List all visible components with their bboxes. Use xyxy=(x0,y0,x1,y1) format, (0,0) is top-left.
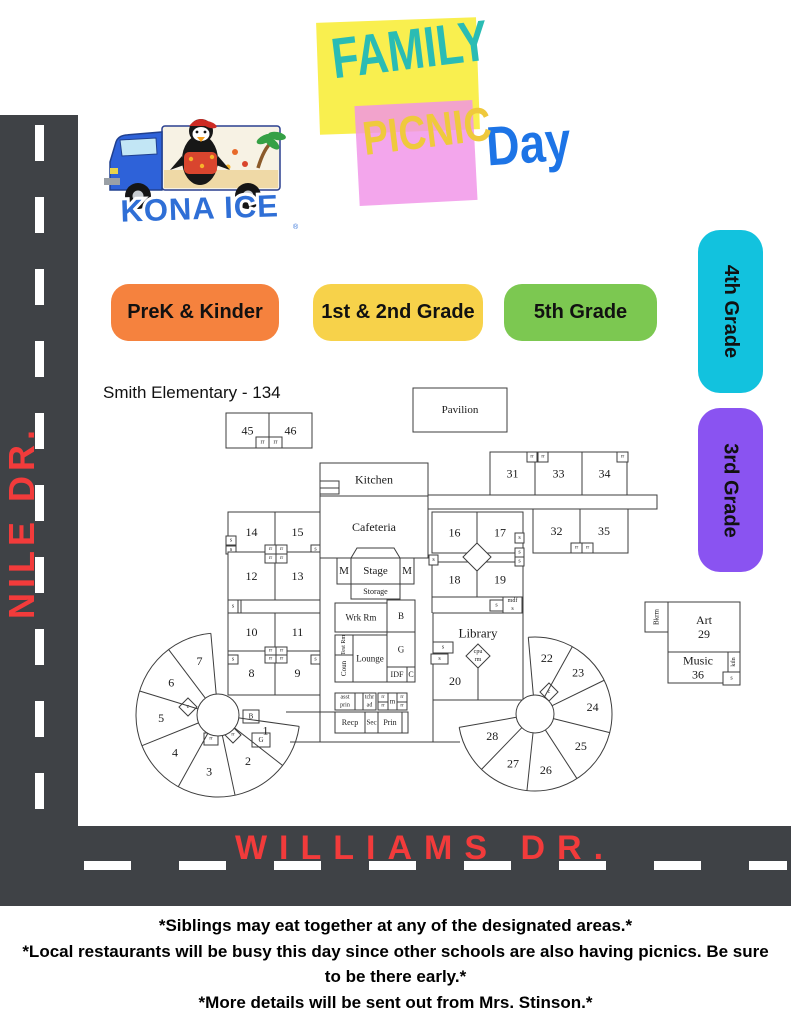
map-label: 26 xyxy=(540,763,552,777)
map-room xyxy=(428,495,657,509)
map-room xyxy=(582,543,593,553)
map-label: Recp xyxy=(342,718,358,727)
map-room xyxy=(535,452,582,495)
map-label: s xyxy=(432,557,435,563)
map-room xyxy=(335,655,353,682)
map-pod-ring xyxy=(459,637,612,791)
map-label: Lounge xyxy=(356,654,384,664)
nile-drive-label: NILE DR. xyxy=(1,402,43,642)
school-name-label: Smith Elementary - 134 xyxy=(103,383,281,403)
map-pod-spoke xyxy=(235,728,283,766)
map-label: 1 xyxy=(263,723,269,737)
map-label: 18 xyxy=(449,573,461,587)
map-room xyxy=(311,655,320,664)
map-label: rr xyxy=(621,455,625,460)
map-label: s xyxy=(232,604,235,610)
map-label: s xyxy=(518,550,521,556)
map-pod-spoke xyxy=(178,733,208,786)
map-room xyxy=(432,562,477,597)
map-label: tchr xyxy=(365,695,374,701)
legend-label: PreK & Kinder xyxy=(127,301,263,324)
map-label: rr xyxy=(280,547,284,552)
map-room xyxy=(353,635,387,682)
map-room xyxy=(275,613,320,651)
map-label: 27 xyxy=(507,756,519,770)
map-label: ad xyxy=(367,703,373,709)
map-label: 28 xyxy=(486,729,498,743)
map-room xyxy=(275,512,320,552)
map-label: rr xyxy=(586,546,590,551)
map-label: C xyxy=(408,670,413,679)
map-label: 4 xyxy=(172,745,178,759)
map-label: rr xyxy=(269,649,273,654)
map-label: Wrk Rm xyxy=(346,613,377,623)
legend-label: 3rd Grade xyxy=(719,443,742,537)
map-label: Sec xyxy=(366,719,376,727)
map-room xyxy=(582,452,627,495)
map-room xyxy=(355,693,363,710)
flyer-page: NILE DR. WILLIAMS DR. FAMILY PICNIC Day xyxy=(0,0,791,1024)
note-line: *Local restaurants will be busy this day… xyxy=(15,939,776,990)
map-room xyxy=(728,652,740,672)
map-label: rr xyxy=(530,455,534,460)
legend-label: 5th Grade xyxy=(534,301,627,324)
legend-4th: 4th Grade xyxy=(698,230,763,393)
map-room xyxy=(243,710,259,723)
title-day: Day xyxy=(484,108,573,179)
map-label: s xyxy=(230,547,233,553)
map-label: rr xyxy=(400,704,404,709)
map-room xyxy=(256,437,269,448)
map-pod-spoke xyxy=(528,637,533,695)
legend-prek-kinder: PreK & Kinder xyxy=(111,284,279,341)
map-pod-hub xyxy=(516,695,554,733)
map-room xyxy=(515,557,524,566)
map-diamond xyxy=(225,727,241,743)
map-room xyxy=(335,712,365,733)
map-label: 11 xyxy=(292,625,304,639)
map-room xyxy=(335,603,387,632)
map-label: s xyxy=(230,538,233,544)
map-room xyxy=(265,655,276,663)
map-label: rr xyxy=(381,704,385,709)
map-room xyxy=(265,545,276,554)
map-room xyxy=(387,667,407,682)
map-room xyxy=(228,655,238,664)
map-room xyxy=(275,552,320,600)
map-label: s xyxy=(495,603,498,609)
legend-5th: 5th Grade xyxy=(504,284,657,341)
map-label: rr xyxy=(280,657,284,662)
map-label: rr xyxy=(269,556,273,561)
map-label: 3 xyxy=(206,764,212,778)
kona-ice-logo: KONA ICE ® xyxy=(100,112,305,237)
map-label: 25 xyxy=(575,739,587,753)
map-room xyxy=(335,693,355,710)
map-diamond xyxy=(466,644,490,668)
map-label: s xyxy=(314,657,317,663)
map-label: 16 xyxy=(449,526,461,540)
map-label: rr xyxy=(541,455,545,460)
map-label: M xyxy=(402,565,412,577)
map-label: rr xyxy=(280,556,284,561)
map-label: Cafeteria xyxy=(352,520,397,534)
map-label: 7 xyxy=(196,654,202,668)
note-line: *Siblings may eat together at any of the… xyxy=(15,913,776,939)
map-room xyxy=(477,562,523,597)
map-room xyxy=(320,463,428,496)
map-label: Pavilion xyxy=(442,404,479,416)
map-label: rr xyxy=(231,733,235,738)
map-label: 5 xyxy=(158,711,164,725)
map-room xyxy=(378,712,402,733)
map-room xyxy=(276,655,287,663)
map-room xyxy=(515,533,524,543)
registered-mark: ® xyxy=(293,223,299,231)
map-label: 29 xyxy=(698,627,710,641)
map-pod-spoke xyxy=(239,718,299,726)
map-label: prin xyxy=(340,703,350,709)
map-diamond xyxy=(179,698,197,716)
map-label: 14 xyxy=(246,525,258,539)
map-room xyxy=(378,693,388,702)
map-room xyxy=(265,647,276,655)
map-label: Coun xyxy=(340,660,348,676)
map-label: rr xyxy=(209,737,213,742)
kona-ice-wordmark: KONA ICE ® xyxy=(120,188,299,231)
map-label: rr xyxy=(381,695,385,700)
map-label: rr xyxy=(280,649,284,654)
map-label: s xyxy=(314,547,317,553)
note-line: *More details will be sent out from Mrs.… xyxy=(15,990,776,1016)
map-label: s xyxy=(518,559,521,565)
map-label: 12 xyxy=(246,569,258,583)
map-room xyxy=(311,545,320,554)
map-label: Library xyxy=(459,626,498,641)
map-label: 23 xyxy=(572,665,584,679)
map-room xyxy=(617,452,628,462)
map-label: rr xyxy=(274,440,278,446)
map-room xyxy=(400,558,414,584)
map-label: s xyxy=(518,535,521,541)
map-label: s xyxy=(730,676,733,682)
map-label: 13 xyxy=(292,569,304,583)
map-pod-spoke xyxy=(545,730,577,779)
map-pod-spoke xyxy=(142,723,199,746)
map-room xyxy=(228,552,275,600)
map-label: 19 xyxy=(494,573,506,587)
legend-3rd: 3rd Grade xyxy=(698,408,763,572)
map-room xyxy=(363,693,376,710)
map-label: c xyxy=(548,689,551,695)
map-room xyxy=(397,702,407,710)
map-room xyxy=(228,600,238,613)
map-label: 10 xyxy=(246,625,258,639)
map-room xyxy=(503,597,522,613)
map-room xyxy=(515,548,524,557)
map-room xyxy=(387,632,415,667)
map-label: Bkrm xyxy=(653,608,661,625)
map-label: 34 xyxy=(599,467,611,481)
map-label: Stage xyxy=(363,565,388,577)
map-label: B xyxy=(249,713,254,721)
map-room xyxy=(337,558,351,584)
map-room xyxy=(204,733,218,745)
map-room xyxy=(397,693,407,702)
map-room xyxy=(320,488,339,494)
map-pod-spoke xyxy=(544,647,572,698)
map-pod-spoke xyxy=(459,717,516,727)
map-label: c xyxy=(187,704,190,710)
map-label: s xyxy=(442,645,445,651)
map-room xyxy=(228,651,275,695)
map-label: M xyxy=(339,565,349,577)
svg-text:KONA ICE: KONA ICE xyxy=(120,188,280,229)
map-room xyxy=(378,702,388,710)
map-label: rm xyxy=(475,657,482,663)
map-room xyxy=(432,512,477,553)
map-label: 22 xyxy=(541,651,553,665)
map-label: Prin xyxy=(383,718,396,727)
map-room xyxy=(276,545,287,554)
map-label: Music xyxy=(683,654,713,668)
map-room xyxy=(668,602,740,652)
map-room xyxy=(533,509,580,553)
map-label: B xyxy=(398,611,404,621)
map-room xyxy=(269,437,282,448)
map-pod-spoke xyxy=(222,736,235,796)
map-pod-spoke xyxy=(211,633,216,694)
map-pod-spoke xyxy=(527,733,533,791)
map-pod-spoke xyxy=(553,719,609,733)
map-label: 24 xyxy=(587,700,599,714)
map-diamond xyxy=(463,543,491,571)
map-label: 31 xyxy=(507,467,519,481)
map-label: Test Rm xyxy=(341,635,347,655)
map-room xyxy=(433,642,453,653)
map-label: 17 xyxy=(494,526,506,540)
map-room xyxy=(538,452,548,462)
map-label: rr xyxy=(269,657,273,662)
map-label: rr xyxy=(261,440,265,446)
map-wall xyxy=(351,548,400,558)
map-pod-spoke xyxy=(140,691,198,709)
map-pod-spoke xyxy=(169,650,206,699)
map-room xyxy=(351,558,400,584)
map-room xyxy=(275,651,320,695)
map-label: 8 xyxy=(249,666,255,680)
map-label: 20 xyxy=(449,674,461,688)
map-label: 6 xyxy=(168,675,174,689)
map-label: Storage xyxy=(363,587,388,596)
map-room xyxy=(388,693,397,710)
map-room xyxy=(571,543,582,553)
map-label: s xyxy=(232,657,235,663)
map-room xyxy=(527,452,537,462)
map-room xyxy=(228,613,275,651)
map-room xyxy=(320,481,339,488)
legend-label: 1st & 2nd Grade xyxy=(321,301,474,324)
map-room xyxy=(431,654,448,664)
map-label: 15 xyxy=(292,525,304,539)
map-room xyxy=(645,602,668,632)
map-room xyxy=(723,672,740,685)
map-room xyxy=(335,635,353,655)
map-room xyxy=(226,536,236,545)
williams-drive-label: WILLIAMS DR. xyxy=(60,829,790,868)
map-label: rr xyxy=(269,547,273,552)
map-label: 33 xyxy=(553,467,565,481)
map-label: asst xyxy=(341,695,350,701)
map-label: 32 xyxy=(551,524,563,538)
map-room xyxy=(276,647,287,655)
map-room xyxy=(351,584,400,599)
map-label: rr xyxy=(575,546,579,551)
map-room xyxy=(365,712,378,733)
map-label: 2 xyxy=(245,754,251,768)
map-room xyxy=(433,613,523,700)
map-label: G xyxy=(398,645,405,655)
map-label: IDF xyxy=(391,670,404,679)
map-label: Art xyxy=(696,613,713,627)
map-label: Kitchen xyxy=(355,473,393,487)
legend-1st-2nd: 1st & 2nd Grade xyxy=(313,284,483,341)
map-room xyxy=(477,512,523,553)
map-room xyxy=(226,546,236,554)
map-label: G xyxy=(258,736,263,744)
map-label: 9 xyxy=(295,666,301,680)
map-room xyxy=(402,712,408,733)
map-room xyxy=(668,652,728,683)
map-room xyxy=(429,555,438,565)
map-pod-spoke xyxy=(552,680,604,705)
map-label: s xyxy=(511,606,514,612)
map-room xyxy=(387,600,415,632)
map-label: 36 xyxy=(692,668,704,682)
map-room xyxy=(276,554,287,563)
map-pod-spoke xyxy=(482,728,522,770)
map-diamond xyxy=(540,683,558,701)
map-room xyxy=(226,413,269,448)
map-label: 46 xyxy=(285,424,297,438)
map-label: mdf xyxy=(508,597,518,604)
map-room xyxy=(490,600,503,611)
map-room xyxy=(490,452,535,495)
map-room xyxy=(228,512,275,552)
map-label: 35 xyxy=(598,524,610,538)
map-room xyxy=(265,554,276,563)
map-label: m xyxy=(390,698,396,706)
legend-label: 4th Grade xyxy=(719,265,742,358)
map-room xyxy=(580,509,628,553)
map-label: cpu xyxy=(474,649,483,655)
map-pod-hub xyxy=(197,694,239,736)
map-room xyxy=(269,413,312,448)
map-label: kiln xyxy=(731,657,737,666)
map-label: s xyxy=(438,656,441,662)
map-room xyxy=(413,388,507,432)
map-label: 45 xyxy=(242,424,254,438)
map-room xyxy=(320,496,428,558)
map-room xyxy=(228,600,320,613)
map-label: rr xyxy=(400,695,404,700)
map-room xyxy=(252,733,270,747)
notes-block: *Siblings may eat together at any of the… xyxy=(15,913,776,1015)
map-pod-ring xyxy=(136,633,299,797)
map-room xyxy=(407,667,415,682)
